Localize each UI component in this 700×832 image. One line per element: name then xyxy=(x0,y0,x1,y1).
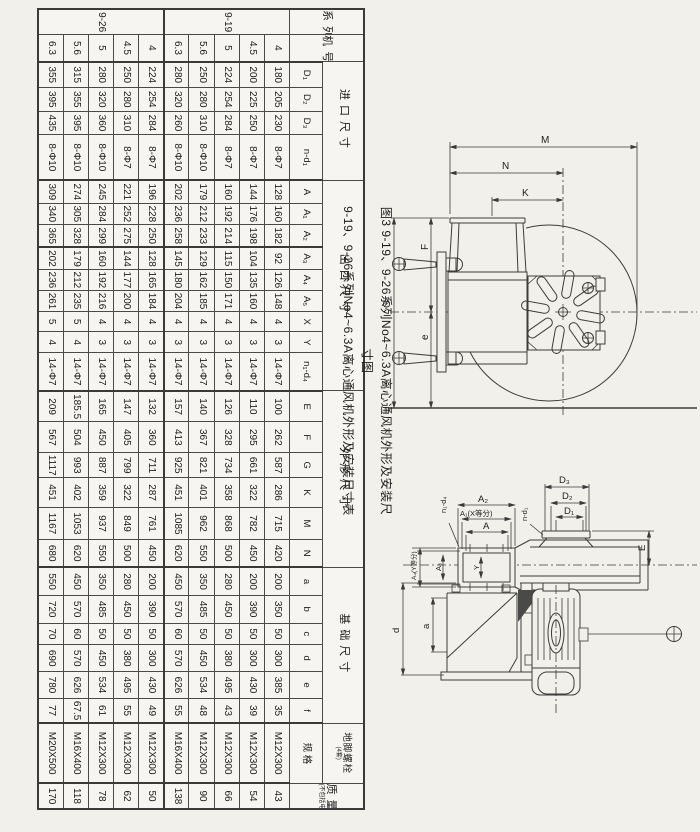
motor-icon xyxy=(532,583,682,714)
dim-label-K: K xyxy=(522,188,529,199)
dim-label-nd4: n₁-d₄ xyxy=(439,497,448,513)
side-view-drawing: M N K G F e xyxy=(382,135,697,415)
dim-label-nd1: n-d₁ xyxy=(520,507,529,521)
dim-label-A1-xdiv: A₁(X等分) xyxy=(460,508,493,518)
dim-label-D2: D₂ xyxy=(562,491,573,502)
dim-label-D1: D₁ xyxy=(564,506,574,517)
dim-label-D3: D₃ xyxy=(559,475,570,486)
dim-label-F: F xyxy=(420,244,431,250)
dim-label-A2: A₂ xyxy=(478,494,488,505)
dim-label-M: M xyxy=(541,135,549,146)
dim-label-d: d xyxy=(391,628,402,633)
dim-label-N: N xyxy=(502,161,509,172)
dim-label-Y: Y xyxy=(472,565,481,570)
dim-label-A4-ydiv: A₄(Y等分) xyxy=(409,551,418,580)
dim-label-A: A xyxy=(483,521,490,532)
technical-drawings: M N K G F e xyxy=(0,0,700,832)
dim-label-A3: A₃ xyxy=(434,563,443,571)
dim-label-e-side: e xyxy=(420,334,431,340)
front-view-drawing: A₂ A₁(X等分) A n₁-d₄ A₄(Y等分) A₃ Y D₃ D₂ D₁… xyxy=(391,475,697,714)
dim-label-E: E xyxy=(637,545,648,551)
scanned-page: 系列机号No进口尺寸出口尺寸外形尺寸基础尺寸地脚螺栓(4套)质量kg(不包括电机… xyxy=(0,0,700,832)
dim-label-a: a xyxy=(421,623,432,629)
clamp-bolt-icon xyxy=(393,352,463,366)
dim-label-G: G xyxy=(382,300,393,308)
